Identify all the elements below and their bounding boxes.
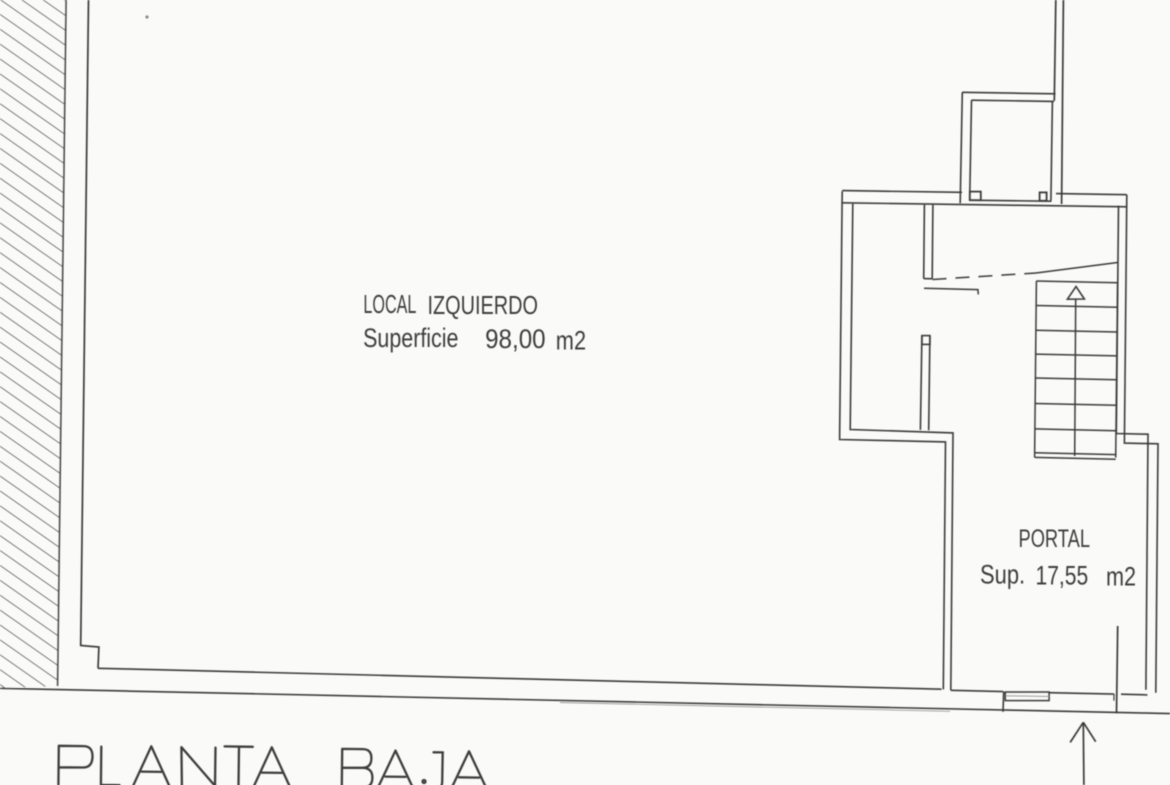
svg-text:LOCAL: LOCAL — [363, 289, 416, 319]
svg-text:m2: m2 — [1106, 562, 1136, 592]
svg-text:IZQUIERDO: IZQUIERDO — [428, 290, 539, 320]
svg-text:98,00: 98,00 — [485, 324, 545, 354]
svg-text:17,55: 17,55 — [1036, 561, 1089, 591]
svg-text:m2: m2 — [556, 326, 586, 356]
svg-text:Superficie: Superficie — [363, 323, 458, 353]
svg-text:PORTAL: PORTAL — [1019, 525, 1091, 553]
svg-text:Sup.: Sup. — [980, 560, 1025, 590]
